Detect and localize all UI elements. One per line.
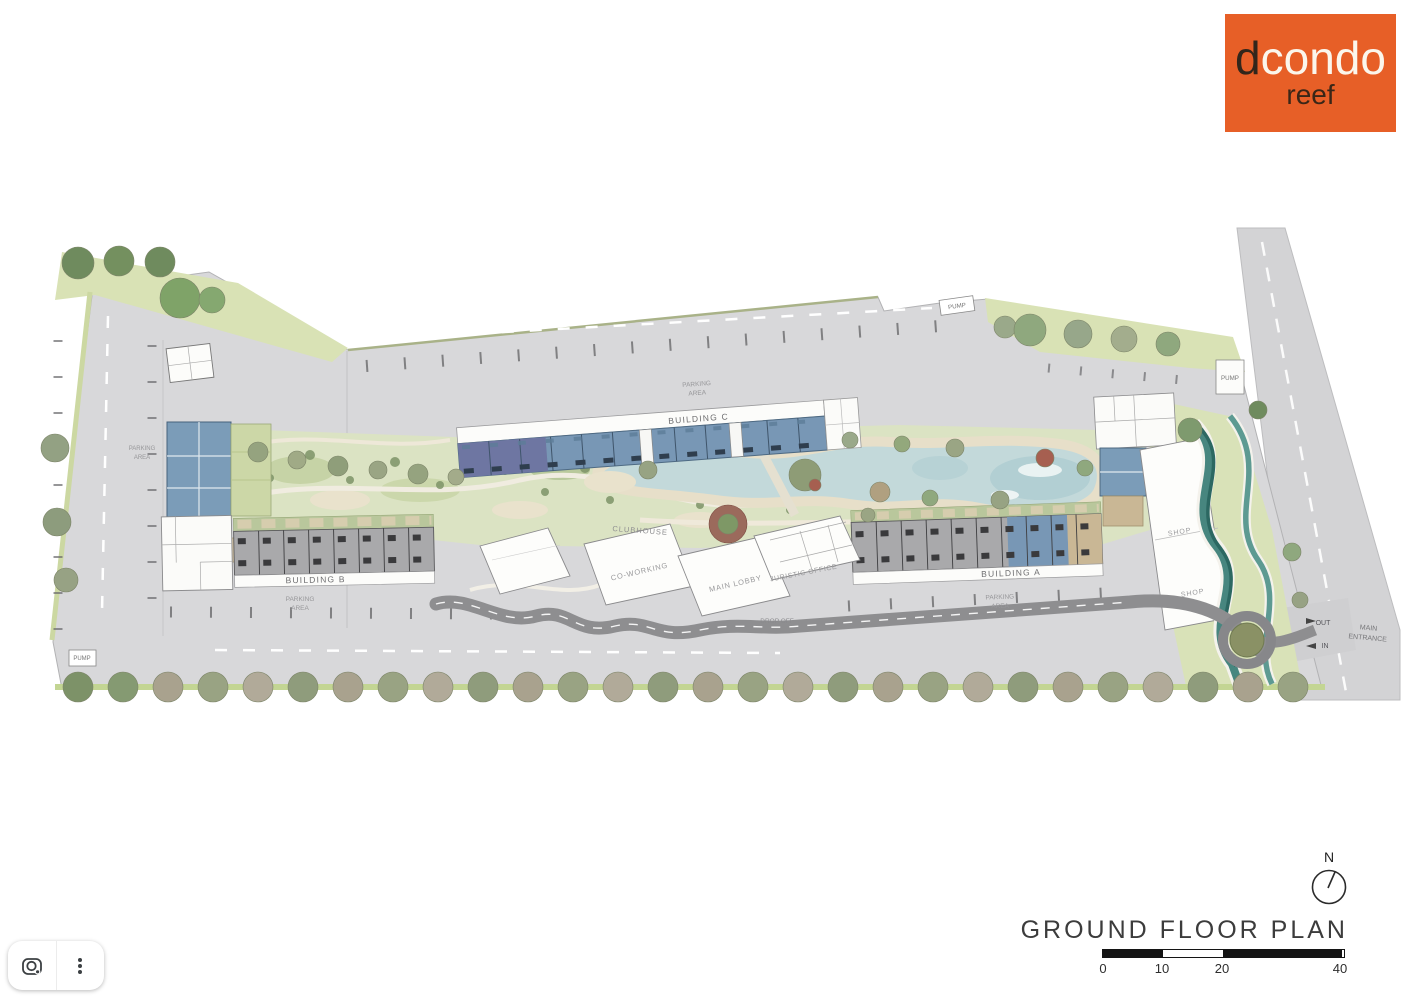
- brand-logo-sub: reef: [1286, 80, 1334, 110]
- kebab-menu-icon: [69, 955, 91, 977]
- pump-label-right: PUMP: [1221, 375, 1239, 382]
- brand-logo-wordmark: dcondo: [1235, 36, 1386, 80]
- parking-label-b-2: AREA: [291, 605, 309, 612]
- scale-tick-10: 10: [1152, 961, 1172, 976]
- lens-search-button[interactable]: [8, 941, 56, 990]
- brand-logo-condo: condo: [1261, 32, 1386, 84]
- out-label: OUT: [1316, 620, 1332, 627]
- parking-label-a-1: PARKING: [985, 594, 1014, 602]
- site-plan: BUILDING C BUILDING B: [0, 0, 1410, 1000]
- scale-segment-black-1: [1103, 950, 1163, 957]
- brand-logo: dcondo reef: [1225, 14, 1396, 132]
- parking-label-left-1: PARKING: [129, 446, 156, 452]
- brand-logo-d: d: [1235, 32, 1261, 84]
- scale-tick-0: 0: [1093, 961, 1113, 976]
- scale-segment-white: [1163, 950, 1223, 957]
- scale-tick-40: 40: [1330, 961, 1350, 976]
- page-title: GROUND FLOOR PLAN: [1021, 916, 1348, 945]
- scale-bar-segments: [1102, 949, 1345, 958]
- more-options-button[interactable]: [57, 941, 105, 990]
- scale-tick-20: 20: [1212, 961, 1232, 976]
- parking-label-a-2: AREA: [991, 603, 1010, 611]
- building-b: BUILDING B: [161, 511, 434, 591]
- viewer-toolbar: [8, 941, 104, 990]
- north-arrow: N: [1305, 850, 1353, 912]
- north-label: N: [1305, 850, 1353, 864]
- scale-segment-black-2: [1223, 950, 1342, 957]
- pump-label-left: PUMP: [73, 656, 90, 662]
- parking-label-left-2: AREA: [134, 455, 150, 461]
- parking-label-top-2: AREA: [688, 389, 707, 397]
- building-a-label: BUILDING A: [981, 567, 1041, 579]
- lens-icon: [20, 954, 44, 978]
- photo-viewer-stage: BUILDING C BUILDING B: [0, 0, 1410, 1000]
- dropoff-label: DROP OFF: [760, 618, 793, 625]
- scale-bar: 0 10 20 40: [1102, 949, 1343, 975]
- north-arrow-dial: [1309, 866, 1349, 906]
- building-b-label: BUILDING B: [285, 574, 345, 585]
- building-a: BUILDING A: [851, 502, 1103, 585]
- parking-label-b-1: PARKING: [286, 596, 315, 603]
- in-label: IN: [1322, 643, 1329, 650]
